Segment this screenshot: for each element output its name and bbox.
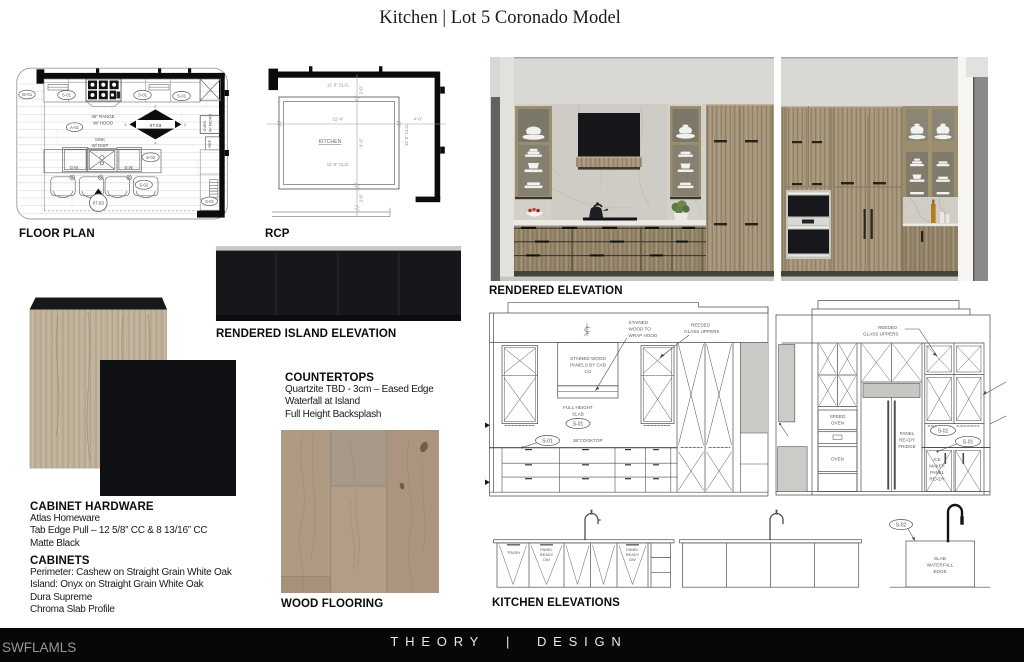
svg-text:2'-0”: 2'-0” [359,193,364,202]
svg-text:WOOD TO: WOOD TO [629,327,652,332]
svg-text:SLAB: SLAB [934,556,946,561]
svg-text:GLASS UPPERS: GLASS UPPERS [684,329,720,334]
svg-text:DW: DW [629,557,636,562]
svg-text:SINK: SINK [95,137,105,142]
svg-text:READY: READY [929,477,944,482]
svg-text:12'-0” CLG.: 12'-0” CLG. [327,162,350,167]
svg-text:WRAP HOOD: WRAP HOOD [629,333,658,338]
svg-text:W-01: W-01 [22,92,33,97]
svg-text:4: 4 [154,142,156,146]
svg-text:W/ MICRO: W/ MICRO [209,114,213,132]
svg-text:S-01: S-01 [205,199,215,204]
svg-text:W/ HOOD: W/ HOOD [93,121,113,126]
svg-text:2'-0”: 2'-0” [359,85,364,94]
svg-text:W/ DISP: W/ DISP [92,143,109,148]
svg-text:OVEN: OVEN [203,120,207,131]
svg-text:OVEN: OVEN [831,421,844,426]
svg-text:11'-0” CLG.: 11'-0” CLG. [327,83,349,88]
svg-text:D.W.: D.W. [70,165,79,170]
svg-text:MAKER: MAKER [929,464,945,469]
svg-text:GLASS UPPERS: GLASS UPPERS [863,332,899,337]
svg-text:11'-4”: 11'-4” [333,117,344,122]
svg-text:5: 5 [125,123,127,127]
svg-text:A-01: A-01 [70,125,80,130]
svg-text:ICE: ICE [933,457,940,462]
svg-text:S-02: S-02 [896,523,907,529]
svg-text:STAINED WOOD: STAINED WOOD [570,356,606,361]
svg-text:PANEL: PANEL [900,431,915,436]
svg-text:S-01: S-01 [177,94,187,99]
svg-text:REF: REF [208,139,212,147]
svg-text:WATERFALL: WATERFALL [927,563,954,568]
svg-text:07.03: 07.03 [93,201,105,206]
svg-text:STAINED: STAINED [629,320,649,325]
svg-text:CO: CO [585,369,592,374]
svg-text:S-01: S-01 [573,422,584,428]
svg-text:36” RANGE: 36” RANGE [91,114,114,119]
svg-text:2: 2 [154,105,156,109]
svg-text:S-02: S-02 [139,182,149,187]
svg-text:OVEN: OVEN [831,457,844,462]
svg-text:DW: DW [543,557,550,562]
svg-text:S-01: S-01 [62,93,72,98]
svg-text:FRIDGE: FRIDGE [898,444,915,449]
svg-text:11'-0” CLG.: 11'-0” CLG. [404,124,409,146]
svg-text:REEDED: REEDED [878,325,898,330]
svg-text:S-01: S-01 [963,440,974,446]
svg-text:3: 3 [184,123,186,127]
svg-text:EDGE: EDGE [933,569,946,574]
svg-text:4'-0”: 4'-0” [414,117,423,122]
svg-text:S-01: S-01 [938,429,949,435]
svg-text:S-01: S-01 [542,439,553,445]
svg-text:SPEED: SPEED [830,414,846,419]
svg-text:REEDED: REEDED [691,323,711,328]
svg-text:KITCHEN: KITCHEN [319,139,342,145]
svg-text:D.W.: D.W. [124,165,133,170]
svg-text:36”COOKTOP: 36”COOKTOP [573,438,603,443]
svg-text:S-02: S-02 [146,155,156,160]
svg-text:07.03: 07.03 [150,123,162,128]
svg-text:SLAB: SLAB [572,412,584,417]
svg-text:TRASH: TRASH [507,550,520,555]
svg-text:PANELS BY CAB: PANELS BY CAB [570,363,606,368]
svg-text:READY: READY [899,438,915,443]
svg-text:PANEL: PANEL [930,470,945,475]
svg-text:9'-9”: 9'-9” [359,138,364,147]
svg-text:FULL HEIGHT: FULL HEIGHT [563,405,593,410]
svg-text:S-01: S-01 [138,93,148,98]
